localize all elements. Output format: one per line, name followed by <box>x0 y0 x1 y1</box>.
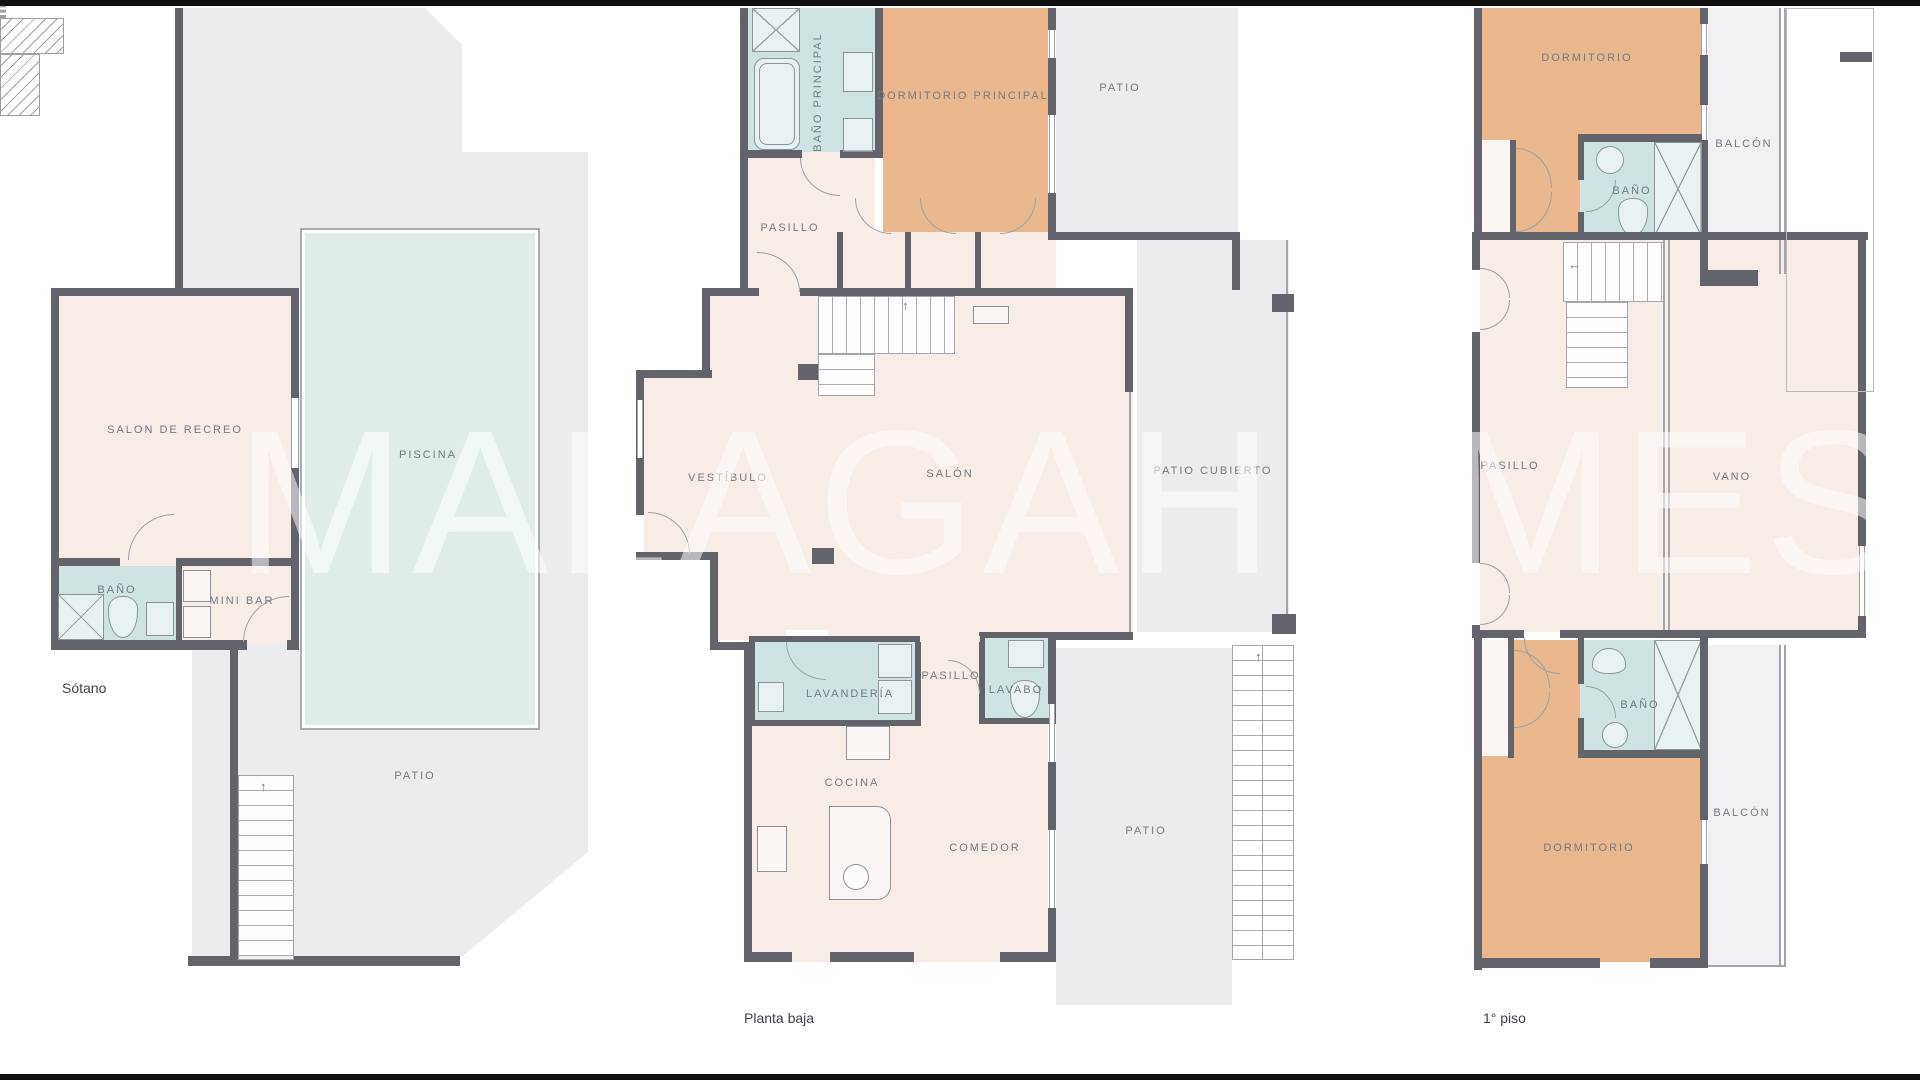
wall <box>1578 142 1584 180</box>
wall <box>1560 630 1866 638</box>
basement-stairs <box>238 775 294 960</box>
hatched-void <box>0 18 64 54</box>
top-border <box>0 0 1920 6</box>
room-label-patio-bottom: PATIO <box>1125 825 1166 837</box>
sink-icon <box>843 118 873 152</box>
kitchen-sink-icon <box>757 826 787 872</box>
wall <box>702 288 710 378</box>
room-label-cocina: COCINA <box>825 777 880 789</box>
minibar-counter-icon <box>183 570 211 602</box>
wall <box>1472 240 1480 270</box>
shower-icon <box>1654 142 1702 236</box>
wall <box>702 288 759 296</box>
wall <box>230 648 238 964</box>
closet-top <box>1482 140 1512 238</box>
wall <box>905 232 911 292</box>
wall <box>175 8 183 294</box>
wall <box>744 650 752 962</box>
wall <box>830 952 914 962</box>
shower-icon <box>1654 640 1702 750</box>
wall <box>176 558 299 566</box>
wall <box>1125 296 1133 392</box>
room-label-mini-bar: MINI BAR <box>210 595 275 607</box>
wall <box>1578 638 1584 684</box>
washer-icon <box>878 644 912 678</box>
stairs-winder <box>0 54 40 116</box>
balcony-rail-line <box>1708 965 1786 967</box>
hall-gap <box>920 636 980 642</box>
window <box>637 400 643 458</box>
glass-wall-line <box>1129 392 1131 632</box>
room-label-patio-top: PATIO <box>1099 82 1140 94</box>
first-floor-stairs-lower <box>1566 302 1628 388</box>
floor-label-primer-piso: 1° piso <box>1483 1010 1526 1026</box>
sink-icon <box>843 52 873 92</box>
wall <box>51 640 247 650</box>
wall <box>1000 952 1056 962</box>
bathtub-icon <box>754 58 800 150</box>
window <box>1701 24 1707 55</box>
wall-post <box>798 364 818 380</box>
room-label-pasillo2: PASILLO <box>921 670 980 682</box>
room-label-bano-top: BAÑO <box>1612 185 1651 197</box>
room-label-patio-basement: PATIO <box>394 770 435 782</box>
room-label-patio-cubierto: PATIO CUBIERTO <box>1154 465 1273 477</box>
wall <box>1700 270 1758 286</box>
wall <box>1700 55 1708 105</box>
swimming-pool <box>300 228 540 730</box>
floor-label-planta-baja: Planta baja <box>744 1010 814 1026</box>
wall <box>744 952 792 962</box>
wardrobe-row <box>837 232 1056 292</box>
room-label-vano: VANO <box>1713 471 1751 483</box>
floorplan-sheet: ↑ SALON DE RECREO PISCINA BAÑO MINI BAR … <box>0 0 1920 1080</box>
wall <box>710 552 718 650</box>
room-label-dormitorio-principal: DORMITORIO PRINCIPAL <box>877 90 1049 102</box>
stairs-divider-line <box>1262 645 1263 960</box>
wall <box>1700 638 1708 820</box>
void-inner-box <box>973 306 1009 324</box>
wall <box>1048 640 1056 704</box>
window <box>1049 30 1055 58</box>
wall <box>710 642 754 650</box>
room-label-dormitorio-bottom: DORMITORIO <box>1543 842 1634 854</box>
toilet-icon <box>1592 648 1626 674</box>
wall <box>1056 232 1240 240</box>
wall <box>51 558 120 566</box>
wall <box>975 232 981 292</box>
door-gap <box>786 630 828 636</box>
covered-patio <box>1137 240 1289 632</box>
wall <box>1048 762 1056 830</box>
room-label-balcon-top: BALCÓN <box>1715 138 1772 150</box>
first-floor-stairs <box>1563 242 1665 302</box>
wall <box>51 288 299 296</box>
minibar-counter-icon <box>183 606 211 638</box>
island-sink-icon <box>843 864 869 890</box>
wall <box>176 566 182 644</box>
sink-icon <box>1008 640 1044 668</box>
wall <box>291 288 299 398</box>
balcony-rail-line <box>1779 645 1781 967</box>
room-label-salon: SALÓN <box>926 468 973 480</box>
shower-icon <box>752 8 800 52</box>
balcony-rail-line <box>1784 645 1786 967</box>
wall <box>1472 630 1524 638</box>
wall <box>1700 864 1708 968</box>
wall <box>1700 8 1708 24</box>
room-label-pasillo-first: PASILLO <box>1480 460 1539 472</box>
room-label-bano-basement: BAÑO <box>97 584 136 596</box>
room-label-comedor: COMEDOR <box>949 842 1020 854</box>
exterior-stairs <box>1232 645 1294 960</box>
sink-icon <box>1602 722 1628 748</box>
window <box>1049 830 1055 908</box>
room-label-lavanderia: LAVANDERÍA <box>806 688 894 700</box>
sliding-door <box>291 398 299 468</box>
wall <box>875 8 883 152</box>
ground-stairs-lower <box>818 354 875 396</box>
ground-patio-top <box>1056 8 1238 232</box>
stairs-up-arrow-icon: ↑ <box>902 299 909 312</box>
wall <box>1474 958 1600 968</box>
wall <box>1472 332 1480 563</box>
room-label-bano-bottom: BAÑO <box>1620 699 1659 711</box>
wall <box>800 288 1133 296</box>
window <box>1049 704 1055 762</box>
stairs-left-arrow-icon: ← <box>1568 258 1581 271</box>
window <box>1859 546 1865 616</box>
sink-icon <box>1596 146 1624 174</box>
wall <box>1578 134 1702 142</box>
floor-label-sotano: Sótano <box>62 680 106 696</box>
wall <box>1474 8 1482 234</box>
room-label-lavabo: LAVABO <box>989 684 1043 696</box>
wall <box>1578 718 1584 752</box>
shower-icon <box>58 594 104 640</box>
wall <box>1232 232 1240 290</box>
ground-stairs <box>818 296 955 354</box>
wall-post <box>1272 294 1294 312</box>
room-label-salon-de-recreo: SALON DE RECREO <box>107 424 243 436</box>
stairs-up-arrow-icon: ↑ <box>1255 650 1262 663</box>
sink-icon <box>146 602 174 636</box>
void-rail-line <box>1668 240 1670 636</box>
wall <box>1048 193 1056 240</box>
window <box>1701 820 1707 864</box>
wall <box>1048 632 1133 640</box>
room-label-pasillo-ground: PASILLO <box>760 222 819 234</box>
wall <box>1048 58 1056 115</box>
sink-icon <box>758 682 784 712</box>
stove-icon <box>846 726 890 760</box>
wall-post <box>812 548 834 564</box>
wall-post <box>1272 614 1296 634</box>
room-label-bano-principal: BAÑO PRINCIPAL <box>812 32 824 152</box>
wall <box>1048 8 1056 30</box>
wall <box>636 370 712 378</box>
bottom-border <box>0 1074 1920 1080</box>
wall <box>837 232 843 292</box>
room-label-balcon-bottom: BALCÓN <box>1713 807 1770 819</box>
stairs-up-arrow-icon: ↑ <box>260 780 267 793</box>
room-label-dormitorio-top: DORMITORIO <box>1541 52 1632 64</box>
wall <box>1578 750 1702 758</box>
room-label-piscina: PISCINA <box>399 449 457 461</box>
wall <box>188 956 460 966</box>
wall <box>740 150 802 158</box>
window <box>1049 115 1055 193</box>
wall <box>1474 638 1482 970</box>
wall-stub <box>1840 52 1872 62</box>
balcony-bottom <box>1708 645 1779 965</box>
room-label-vestibulo: VESTÍBULO <box>688 472 768 484</box>
closet-bottom <box>1479 640 1509 756</box>
roof-terrace-outline <box>1786 8 1874 392</box>
void-rail-line <box>1663 240 1665 636</box>
